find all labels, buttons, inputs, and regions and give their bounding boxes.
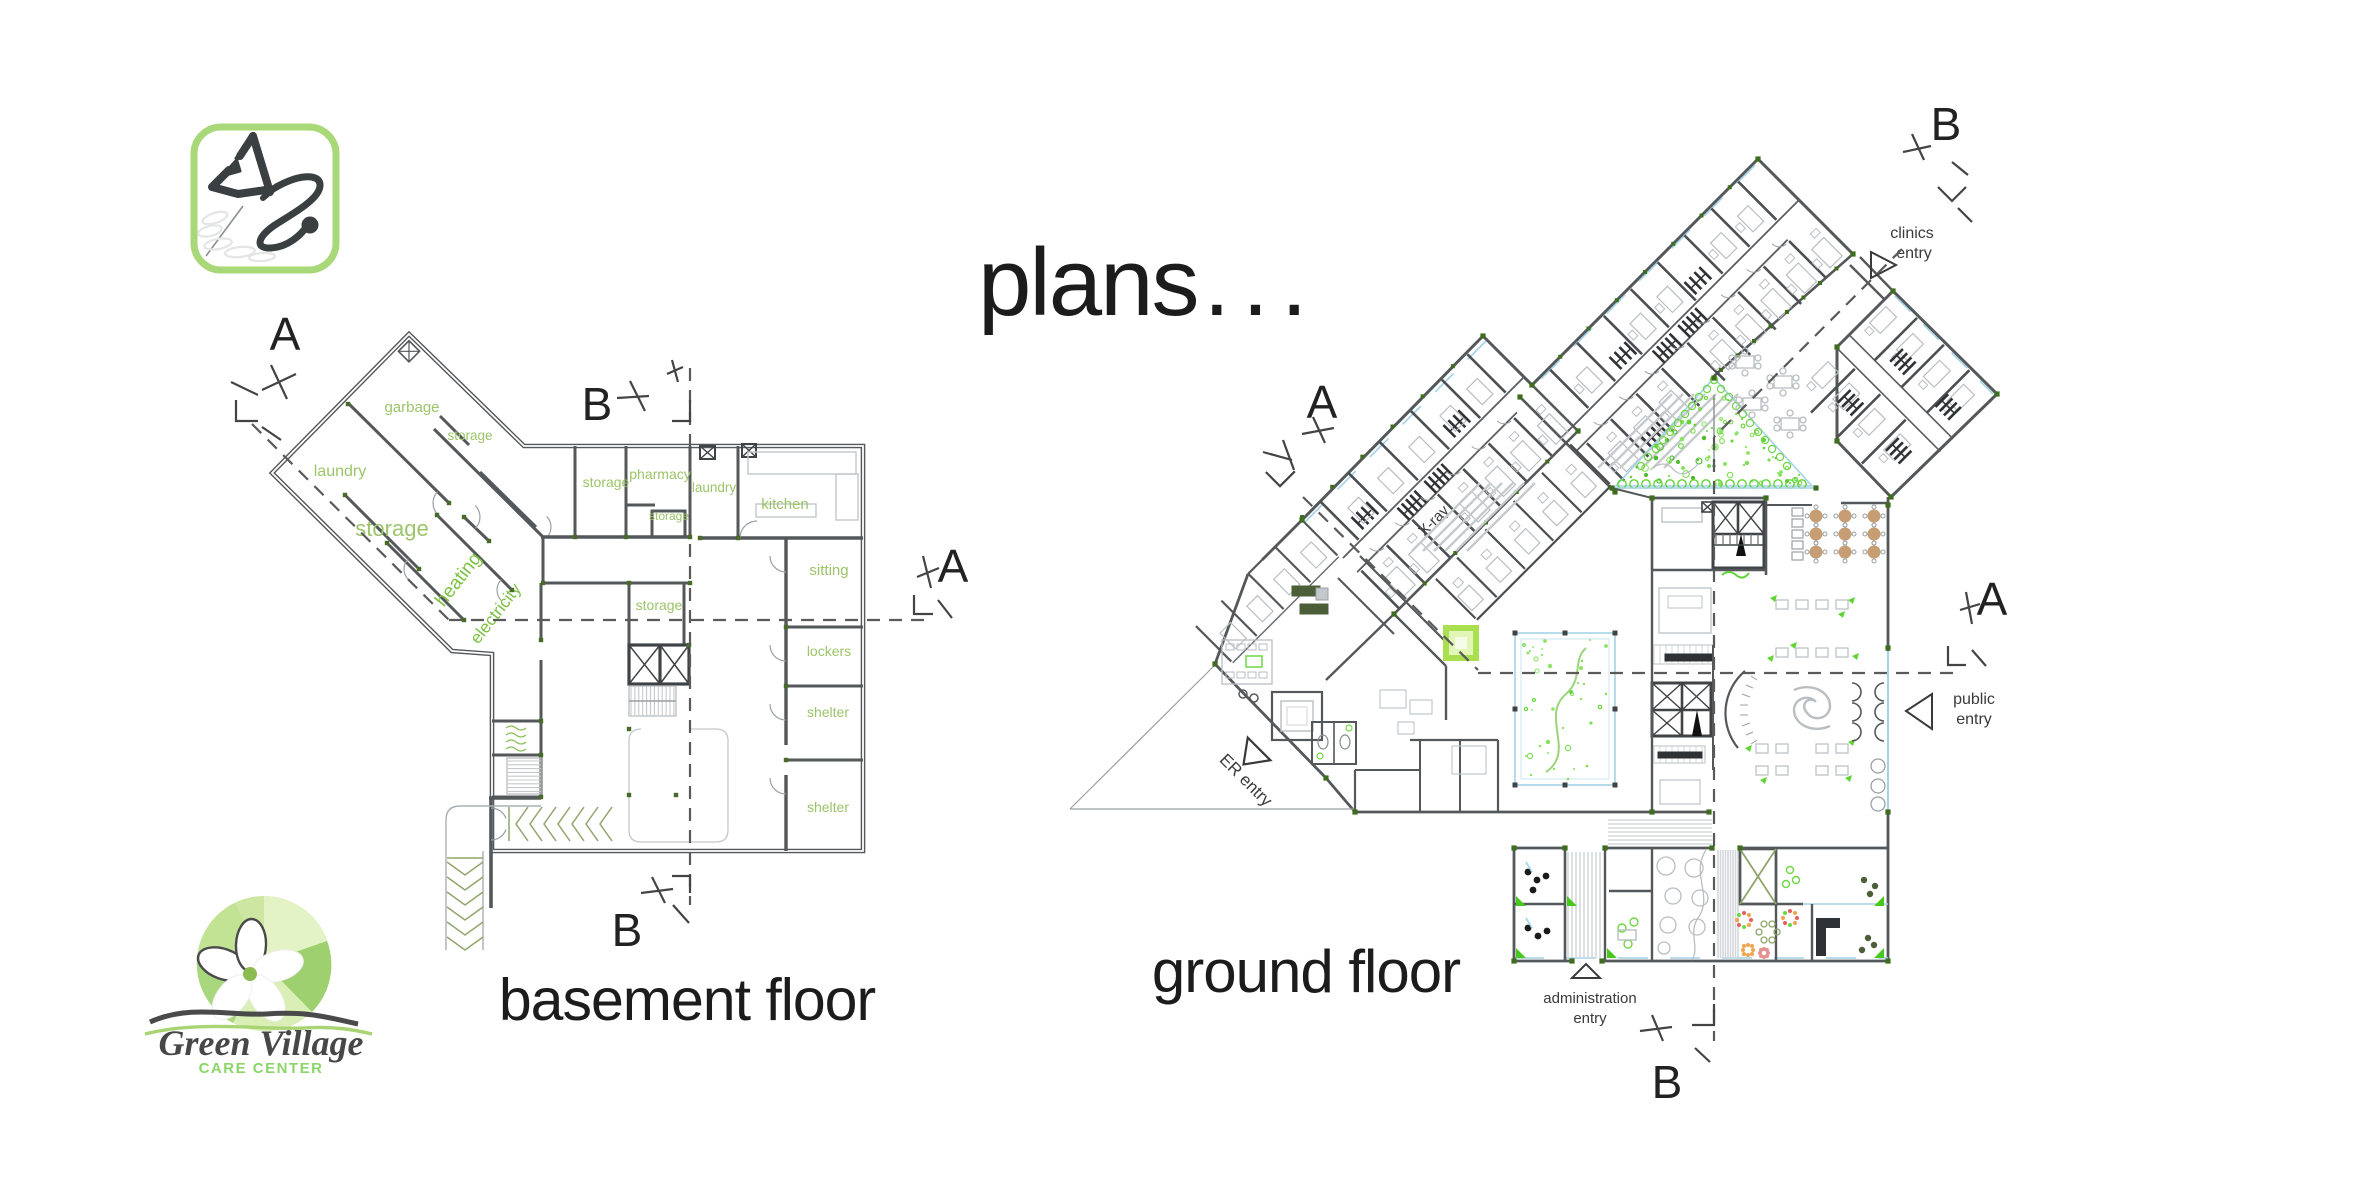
svg-text:storage: storage — [583, 474, 630, 490]
svg-text:heating: heating — [431, 549, 486, 611]
svg-text:B: B — [612, 904, 643, 956]
svg-text:public: public — [1953, 691, 1995, 708]
svg-text:A: A — [1977, 573, 2008, 625]
svg-text:laundry: laundry — [692, 480, 737, 495]
svg-text:basement floor: basement floor — [499, 967, 876, 1033]
svg-text:Green Village: Green Village — [159, 1023, 364, 1063]
svg-text:clinics: clinics — [1890, 225, 1934, 242]
svg-text:B: B — [582, 378, 613, 430]
svg-text:pharmacy: pharmacy — [629, 466, 690, 482]
svg-text:entry: entry — [1573, 1010, 1607, 1027]
svg-text:shelter: shelter — [807, 704, 849, 720]
svg-text:A: A — [1307, 376, 1338, 428]
svg-text:entry: entry — [1956, 711, 1992, 728]
svg-text:administration: administration — [1543, 990, 1636, 1007]
svg-text:entry: entry — [1896, 245, 1932, 262]
svg-text:storage: storage — [447, 428, 492, 443]
svg-text:laundry: laundry — [314, 463, 366, 480]
svg-text:shelter: shelter — [807, 799, 849, 815]
svg-text:storage: storage — [649, 509, 689, 523]
svg-text:lockers: lockers — [807, 643, 851, 659]
svg-text:B: B — [1931, 98, 1962, 150]
svg-text:plans...: plans... — [978, 229, 1306, 336]
svg-text:CARE CENTER: CARE CENTER — [199, 1060, 324, 1077]
svg-text:kitchen: kitchen — [761, 496, 809, 513]
svg-text:sitting: sitting — [809, 562, 848, 579]
svg-text:storage: storage — [636, 597, 683, 613]
svg-text:B: B — [1652, 1056, 1683, 1108]
svg-text:A: A — [270, 308, 301, 360]
svg-text:garbage: garbage — [384, 399, 439, 416]
svg-text:ER entry: ER entry — [1216, 750, 1277, 811]
svg-text:electricity: electricity — [466, 579, 525, 647]
svg-text:A: A — [938, 540, 969, 592]
svg-text:ground floor: ground floor — [1152, 938, 1460, 1005]
